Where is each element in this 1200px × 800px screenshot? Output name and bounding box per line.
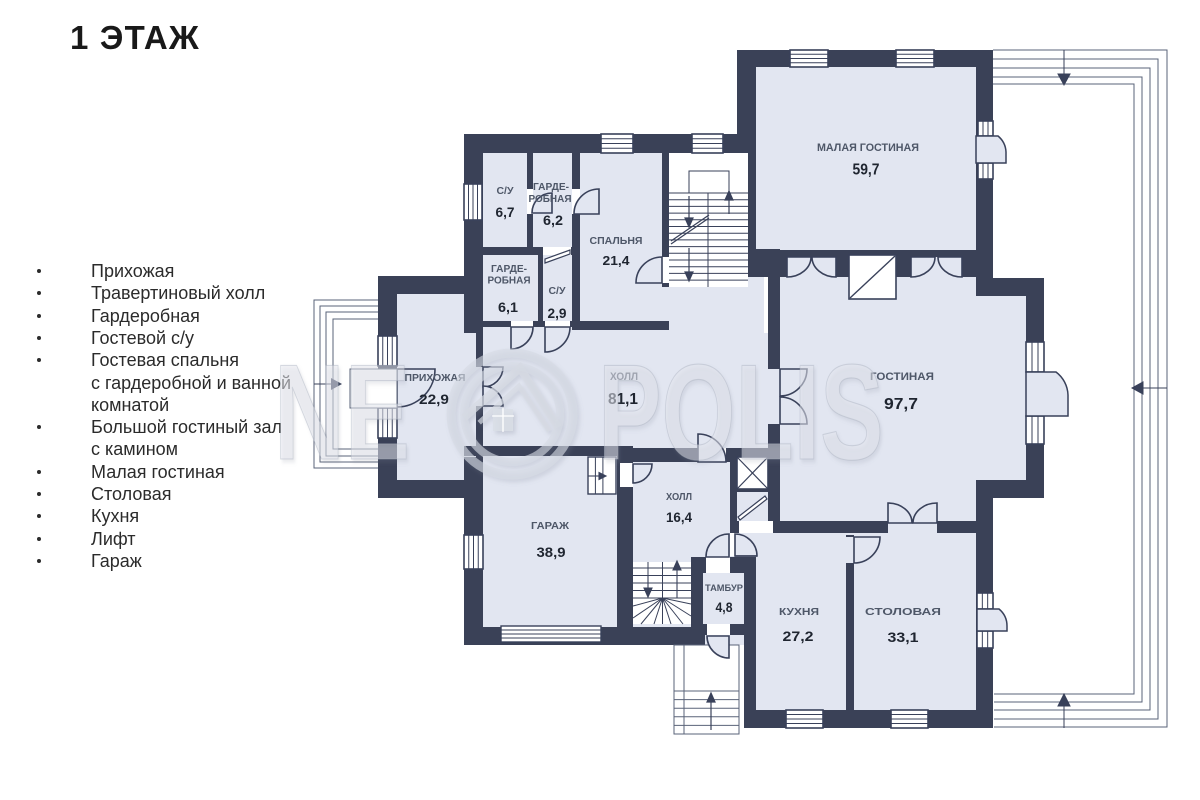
svg-text:81,1: 81,1 [608, 391, 638, 408]
svg-text:6,7: 6,7 [496, 204, 515, 220]
svg-text:59,7: 59,7 [853, 162, 880, 179]
svg-text:МАЛАЯ ГОСТИНАЯ: МАЛАЯ ГОСТИНАЯ [817, 142, 919, 154]
svg-text:ПРИХОЖАЯ: ПРИХОЖАЯ [405, 372, 466, 384]
svg-text:2,9: 2,9 [548, 306, 567, 321]
svg-text:16,4: 16,4 [666, 509, 692, 525]
svg-text:ХОЛЛ: ХОЛЛ [610, 371, 638, 383]
svg-text:РОБНАЯ: РОБНАЯ [488, 275, 531, 287]
svg-text:4,8: 4,8 [716, 600, 733, 615]
svg-text:38,9: 38,9 [537, 544, 566, 560]
svg-text:22,9: 22,9 [419, 391, 449, 407]
svg-text:РОБНАЯ: РОБНАЯ [529, 193, 572, 205]
svg-text:ГАРДЕ-: ГАРДЕ- [491, 263, 527, 275]
svg-text:6,2: 6,2 [543, 212, 563, 228]
svg-text:ГАРДЕ-: ГАРДЕ- [533, 181, 569, 193]
svg-text:ГАРАЖ: ГАРАЖ [531, 520, 570, 532]
svg-text:21,4: 21,4 [603, 253, 631, 268]
svg-text:ГОСТИНАЯ: ГОСТИНАЯ [870, 371, 934, 383]
svg-text:КУХНЯ: КУХНЯ [779, 606, 819, 618]
svg-text:27,2: 27,2 [783, 628, 814, 644]
svg-text:97,7: 97,7 [884, 396, 918, 413]
svg-text:СПАЛЬНЯ: СПАЛЬНЯ [590, 235, 643, 247]
svg-text:ТАМБУР: ТАМБУР [705, 583, 744, 594]
svg-text:33,1: 33,1 [888, 629, 919, 645]
svg-text:С/У: С/У [497, 185, 514, 197]
svg-text:6,1: 6,1 [498, 299, 518, 315]
svg-text:ХОЛЛ: ХОЛЛ [666, 491, 692, 503]
svg-text:С/У: С/У [549, 285, 566, 297]
svg-text:СТОЛОВАЯ: СТОЛОВАЯ [865, 606, 941, 618]
